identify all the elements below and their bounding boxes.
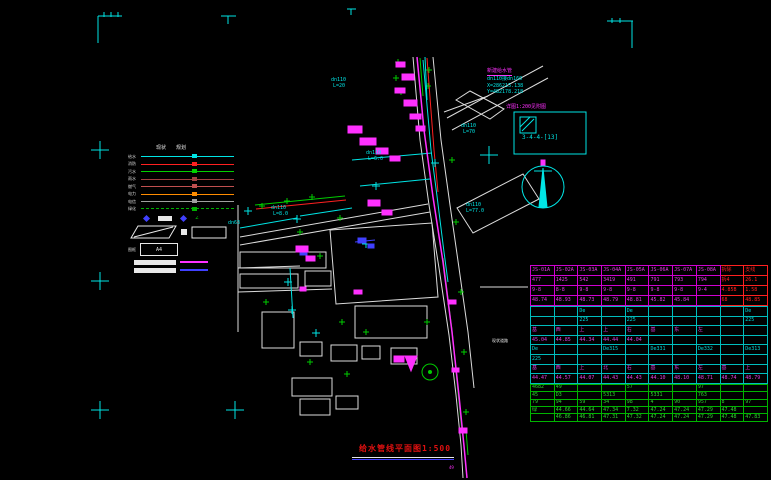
table-cell: 48.79 bbox=[744, 374, 768, 384]
table-cell: 48.10 bbox=[673, 374, 697, 384]
scale-bar bbox=[134, 260, 176, 265]
table-cell bbox=[649, 307, 673, 317]
legend-line-sample bbox=[141, 194, 234, 195]
table-cell: 59 bbox=[578, 399, 602, 406]
table-cell bbox=[602, 307, 626, 317]
table-cell: 47.29 bbox=[696, 406, 720, 413]
table-cell: 47.29 bbox=[696, 414, 720, 421]
legend-line-marker bbox=[192, 177, 197, 181]
table-cell: 225 bbox=[625, 316, 649, 326]
table-cell: 5331 bbox=[649, 392, 673, 399]
table-cell: 北 bbox=[602, 364, 626, 374]
table-cell: 47.48 bbox=[720, 406, 744, 413]
table-cell: 左 bbox=[696, 364, 720, 374]
legend-row: 电信 bbox=[128, 198, 234, 206]
legend-line-marker bbox=[192, 154, 197, 158]
table-cell: 763 bbox=[696, 392, 720, 399]
table-cell: 94 bbox=[554, 399, 578, 406]
table-cell: 9-8 bbox=[531, 286, 555, 296]
table-cell: JS-05A bbox=[625, 266, 649, 276]
table-cell: De331 bbox=[649, 345, 673, 355]
legend-row-label: 给水 bbox=[128, 154, 141, 160]
map-label: L=70 bbox=[463, 130, 475, 136]
map-label: L=8.0 bbox=[273, 212, 288, 218]
legend-row: 雨水 bbox=[128, 176, 234, 184]
legend-symbols: ∠ bbox=[128, 213, 234, 224]
table-cell: 97 bbox=[696, 384, 720, 391]
table-row: 44.4744.5744.0744.4344.4344.1048.1048.71… bbox=[531, 374, 768, 384]
table-cell: 26.1 bbox=[744, 276, 768, 286]
hydrant-icon bbox=[158, 216, 172, 221]
valve-icon bbox=[180, 215, 187, 222]
table-cell: 48.79 bbox=[602, 296, 626, 306]
table-cell: 基 bbox=[720, 364, 744, 374]
legend-row: 电力 bbox=[128, 191, 234, 199]
table-row: 225 bbox=[531, 354, 768, 364]
frame-size-box: A4 bbox=[140, 243, 178, 256]
detail-code: 3-4-4-[13] bbox=[522, 134, 558, 141]
table-cell: 46.86 bbox=[554, 414, 578, 421]
legend-line-marker bbox=[192, 162, 197, 166]
table-cell: 西 bbox=[554, 326, 578, 336]
table-cell bbox=[554, 354, 578, 364]
legend-row-label: 燃气 bbox=[128, 184, 141, 190]
table-cell: 基 bbox=[649, 326, 673, 336]
table-cell bbox=[720, 345, 744, 355]
legend-row: 燃气 bbox=[128, 183, 234, 191]
legend-frame-row: 图框 A4 bbox=[128, 243, 234, 256]
table-cell: 57 bbox=[625, 384, 649, 391]
table-cell: 47.34 bbox=[602, 406, 626, 413]
table-cell bbox=[649, 316, 673, 326]
legend-row: 给水 bbox=[128, 153, 234, 161]
table-cell: 491 bbox=[625, 276, 649, 286]
table-cell: 47.24 bbox=[649, 406, 673, 413]
table-cell: 上 bbox=[578, 364, 602, 374]
table-cell: 9-8 bbox=[649, 286, 673, 296]
legend-row-label: 雨水 bbox=[128, 176, 141, 182]
blue-line-sample bbox=[180, 269, 208, 271]
legend: 现状 规划 给水消防污水雨水燃气电力电信绿化 ∠ 图框 A4 bbox=[128, 144, 234, 275]
table-cell: 1425 bbox=[554, 276, 578, 286]
table-cell: 794 bbox=[696, 276, 720, 286]
table-cell bbox=[696, 296, 720, 306]
legend-row-label: 电力 bbox=[128, 191, 141, 197]
roads-buildings bbox=[238, 57, 548, 478]
table-row: DeDe315De331De332De313 bbox=[531, 345, 768, 355]
legend-line-marker bbox=[192, 184, 197, 188]
data-table: JS-01AJS-02AJS-03AJS-04AJS-05AJS-06AJS-0… bbox=[530, 265, 768, 422]
table-cell bbox=[673, 384, 697, 391]
table-row: 225225225 bbox=[531, 316, 768, 326]
table-cell: 45.04 bbox=[531, 335, 555, 345]
table-cell bbox=[744, 326, 768, 336]
table-cell: De315 bbox=[602, 345, 626, 355]
title-underline bbox=[352, 457, 454, 458]
table-cell: JS-03A bbox=[578, 266, 602, 276]
legend-line-sample bbox=[141, 179, 234, 180]
coordinate-annotation: 新建给水管 dn110接dn160 X=286215.138 Y=482178.… bbox=[487, 68, 523, 96]
legend-line-sample bbox=[141, 201, 234, 202]
table-cell bbox=[696, 354, 720, 364]
table-cell: 9-8 bbox=[625, 286, 649, 296]
table-section: DeDeDe225225225基西上上右基东左45.0444.8544.3444… bbox=[530, 306, 768, 384]
annotation-y: Y=482178.218 bbox=[487, 89, 523, 95]
table-cell: 左 bbox=[696, 326, 720, 336]
table-cell bbox=[578, 354, 602, 364]
legend-col-planned: 规划 bbox=[176, 144, 186, 151]
table-cell bbox=[649, 354, 673, 364]
table-cell: JS-04A bbox=[602, 266, 626, 276]
table-cell: 477 bbox=[531, 276, 555, 286]
table-row: 绿44.6644.6447.347.3247.2447.2447.2947.48 bbox=[531, 406, 768, 413]
table-cell: De bbox=[578, 307, 602, 317]
table-cell: 西 bbox=[554, 364, 578, 374]
table-cell: 基 bbox=[531, 326, 555, 336]
table-row: 7994593498490957897 bbox=[531, 399, 768, 406]
map-label: L=20 bbox=[333, 84, 345, 90]
table-cell bbox=[578, 392, 602, 399]
table-cell: 支线 bbox=[744, 266, 768, 276]
table-section: JS-01AJS-02AJS-03AJS-04AJS-05AJS-06AJS-0… bbox=[530, 265, 768, 306]
legend-col-existing: 现状 bbox=[156, 144, 166, 151]
joint-icon: ∠ bbox=[195, 215, 199, 222]
table-cell: 48.85 bbox=[744, 296, 768, 306]
table-cell bbox=[744, 354, 768, 364]
legend-line-marker bbox=[192, 192, 197, 196]
table-cell bbox=[720, 326, 744, 336]
table-cell bbox=[720, 354, 744, 364]
map-label: 现状道路 bbox=[492, 339, 508, 343]
table-cell: 44.34 bbox=[578, 335, 602, 345]
table-cell: 49 bbox=[554, 384, 578, 391]
table-cell bbox=[744, 384, 768, 391]
table-cell: 绿 bbox=[531, 406, 555, 413]
legend-line-sample bbox=[141, 208, 234, 210]
table-cell: 47.24 bbox=[673, 406, 697, 413]
table-cell: 4.85B bbox=[720, 286, 744, 296]
table-cell: JS-02A bbox=[554, 266, 578, 276]
table-cell: 45 bbox=[531, 392, 555, 399]
table-cell bbox=[531, 316, 555, 326]
table-cell: 东 bbox=[673, 364, 697, 374]
table-cell bbox=[625, 392, 649, 399]
annotation-x: X=286215.138 bbox=[487, 83, 523, 89]
table-cell: 48.81 bbox=[625, 296, 649, 306]
map-label: 49 bbox=[449, 466, 454, 470]
table-cell: 9-8 bbox=[673, 286, 697, 296]
table-row: DeDeDe bbox=[531, 307, 768, 317]
table-cell: 44.47 bbox=[531, 374, 555, 384]
table-cell bbox=[578, 384, 602, 391]
table-cell: 8 bbox=[720, 399, 744, 406]
table-cell: 47.31 bbox=[602, 414, 626, 421]
annotation-pipe: dn110接dn160 bbox=[487, 76, 522, 82]
map-label: L=77.0 bbox=[466, 209, 484, 215]
table-cell bbox=[649, 335, 673, 345]
table-cell: 44.07 bbox=[578, 374, 602, 384]
table-cell: 44.04 bbox=[625, 335, 649, 345]
table-cell: 957 bbox=[696, 399, 720, 406]
table-cell: 47.24 bbox=[649, 414, 673, 421]
table-cell: 44.43 bbox=[625, 374, 649, 384]
table-cell: 44.44 bbox=[602, 335, 626, 345]
sheet-title: 给水管线平面图1:500 bbox=[350, 443, 460, 454]
table-cell: JS-07A bbox=[673, 266, 697, 276]
table-cell: 98 bbox=[625, 399, 649, 406]
table-cell: 上 bbox=[578, 326, 602, 336]
table-cell: 7.32 bbox=[625, 406, 649, 413]
table-cell: 上 bbox=[602, 326, 626, 336]
table-row: 45D353135331763 bbox=[531, 392, 768, 399]
table-cell bbox=[744, 406, 768, 413]
valve-icon bbox=[143, 215, 150, 222]
table-cell: 9-4 bbox=[696, 286, 720, 296]
map-label: L=6.0 bbox=[368, 157, 383, 163]
table-cell: 4682 bbox=[531, 384, 555, 391]
annotation-title: 新建给水管 bbox=[487, 68, 512, 76]
table-cell bbox=[673, 392, 697, 399]
table-cell: JS-06A bbox=[649, 266, 673, 276]
table-cell: 48.73 bbox=[578, 296, 602, 306]
table-cell: 4 bbox=[649, 399, 673, 406]
legend-row: 消防 bbox=[128, 161, 234, 169]
north-arrow-icon bbox=[522, 166, 564, 208]
table-cell: 48.71 bbox=[696, 374, 720, 384]
table-cell: De bbox=[625, 307, 649, 317]
table-cell: De bbox=[531, 345, 555, 355]
legend-lines: 给水消防污水雨水燃气电力电信绿化 bbox=[128, 153, 234, 213]
table-cell: 45.82 bbox=[649, 296, 673, 306]
table-row: 基西上上右基东左 bbox=[531, 326, 768, 336]
table-cell: 45.84 bbox=[673, 296, 697, 306]
table-cell bbox=[649, 384, 673, 391]
title-underline-blue bbox=[352, 459, 454, 460]
legend-row-label: 污水 bbox=[128, 169, 141, 175]
table-cell: 基 bbox=[531, 364, 555, 374]
table-cell bbox=[720, 307, 744, 317]
table-cell: 90 bbox=[673, 399, 697, 406]
table-row: 9-88-89-89-89-89-89-89-44.85B1.58 bbox=[531, 286, 768, 296]
table-cell: 右 bbox=[625, 364, 649, 374]
red-pipes bbox=[256, 58, 438, 209]
table-cell: 225 bbox=[744, 316, 768, 326]
legend-row-label: 电信 bbox=[128, 199, 141, 205]
table-cell: De bbox=[744, 307, 768, 317]
table-cell bbox=[625, 354, 649, 364]
table-cell: JS-01A bbox=[531, 266, 555, 276]
table-cell: 东 bbox=[673, 326, 697, 336]
legend-line-marker bbox=[192, 169, 197, 173]
legend-row-label: 绿化 bbox=[128, 206, 141, 212]
scale-bar bbox=[134, 268, 176, 273]
legend-row: 绿化 bbox=[128, 206, 234, 214]
table-cell: 68 bbox=[720, 296, 744, 306]
table-cell: JS-08A bbox=[696, 266, 720, 276]
table-cell: 793 bbox=[673, 276, 697, 286]
table-cell bbox=[673, 316, 697, 326]
table-cell bbox=[673, 307, 697, 317]
table-cell: 47.24 bbox=[673, 414, 697, 421]
table-row: 46.8646.8147.3147.3247.2447.2447.2947.48… bbox=[531, 414, 768, 421]
table-cell: 48.74 bbox=[720, 374, 744, 384]
table-cell bbox=[696, 307, 720, 317]
table-cell: 44.10 bbox=[649, 374, 673, 384]
table-cell bbox=[673, 345, 697, 355]
table-cell bbox=[578, 345, 602, 355]
table-cell: 47.83 bbox=[744, 414, 768, 421]
table-cell: 拆除 bbox=[720, 266, 744, 276]
sheet-title-text: 给水管线平面图 bbox=[359, 444, 422, 453]
table-cell: De332 bbox=[696, 345, 720, 355]
table-cell bbox=[602, 384, 626, 391]
table-cell bbox=[602, 354, 626, 364]
table-cell bbox=[554, 307, 578, 317]
table-cell bbox=[554, 316, 578, 326]
table-cell bbox=[744, 392, 768, 399]
table-cell: 右 bbox=[625, 326, 649, 336]
legend-line-sample bbox=[141, 164, 234, 165]
table-cell bbox=[531, 307, 555, 317]
legend-surfaces bbox=[128, 224, 234, 240]
table-cell: 225 bbox=[531, 354, 555, 364]
table-cell: 9-8 bbox=[578, 286, 602, 296]
table-cell: 97 bbox=[744, 399, 768, 406]
table-cell bbox=[554, 345, 578, 355]
table-cell bbox=[696, 316, 720, 326]
table-cell bbox=[720, 392, 744, 399]
legend-line-sample bbox=[141, 171, 234, 172]
legend-line-sample bbox=[141, 186, 234, 187]
table-row: 基西上北右基东左基上 bbox=[531, 364, 768, 374]
table-cell: 5313 bbox=[602, 392, 626, 399]
table-cell bbox=[673, 354, 697, 364]
sheet-title-scale: 1:500 bbox=[422, 444, 451, 453]
table-cell: 34 bbox=[602, 399, 626, 406]
table-cell: 上 bbox=[744, 364, 768, 374]
table-cell: 47.32 bbox=[625, 414, 649, 421]
table-cell: 拆4 bbox=[720, 276, 744, 286]
table-row: 4682495797 bbox=[531, 384, 768, 391]
legend-row-label: 消防 bbox=[128, 161, 141, 167]
legend-header: 现状 规划 bbox=[128, 144, 234, 151]
table-cell bbox=[720, 335, 744, 345]
frame-label: 图框 bbox=[128, 247, 136, 253]
legend-bars bbox=[128, 259, 234, 275]
table-cell: 47.48 bbox=[720, 414, 744, 421]
table-cell: 9-8 bbox=[602, 286, 626, 296]
table-cell: 791 bbox=[649, 276, 673, 286]
cad-viewport[interactable]: 新建给水管 dn110接dn160 X=286215.138 Y=482178.… bbox=[0, 0, 771, 480]
table-cell: 44.43 bbox=[602, 374, 626, 384]
table-cell bbox=[531, 414, 555, 421]
table-cell: 48.93 bbox=[554, 296, 578, 306]
table-cell: 44.64 bbox=[578, 406, 602, 413]
legend-row: 污水 bbox=[128, 168, 234, 176]
table-cell: 1.58 bbox=[744, 286, 768, 296]
legend-line-marker bbox=[192, 199, 197, 203]
table-cell: 48.74 bbox=[531, 296, 555, 306]
legend-line-marker bbox=[192, 207, 197, 211]
table-cell bbox=[673, 335, 697, 345]
legend-line-sample bbox=[141, 156, 234, 157]
table-row: JS-01AJS-02AJS-03AJS-04AJS-05AJS-06AJS-0… bbox=[531, 266, 768, 276]
table-cell: 3419 bbox=[602, 276, 626, 286]
table-cell: 8-8 bbox=[554, 286, 578, 296]
table-cell: De313 bbox=[744, 345, 768, 355]
table-cell bbox=[744, 335, 768, 345]
table-cell bbox=[602, 316, 626, 326]
magenta-line-sample bbox=[180, 261, 208, 263]
table-cell: 542 bbox=[578, 276, 602, 286]
table-cell: 44.85 bbox=[554, 335, 578, 345]
table-section: 468249579745D353135331763799459349849095… bbox=[530, 384, 768, 422]
table-cell bbox=[720, 316, 744, 326]
table-row: 47714255423419491791793794拆426.1 bbox=[531, 276, 768, 286]
table-cell bbox=[625, 345, 649, 355]
table-cell: 基 bbox=[649, 364, 673, 374]
table-cell: 46.81 bbox=[578, 414, 602, 421]
table-row: 45.0444.8544.3444.4444.04 bbox=[531, 335, 768, 345]
table-row: 48.7448.9348.7348.7948.8145.8245.846848.… bbox=[531, 296, 768, 306]
table-cell: 79 bbox=[531, 399, 555, 406]
table-cell: 225 bbox=[578, 316, 602, 326]
map-label: dn63 bbox=[228, 221, 240, 227]
table-cell bbox=[720, 384, 744, 391]
detail-note: 详图1:200见附图 bbox=[506, 103, 546, 110]
table-cell: D3 bbox=[554, 392, 578, 399]
table-cell bbox=[696, 335, 720, 345]
detail-box bbox=[514, 112, 586, 154]
table-cell: 44.57 bbox=[554, 374, 578, 384]
table-cell: 44.66 bbox=[554, 406, 578, 413]
